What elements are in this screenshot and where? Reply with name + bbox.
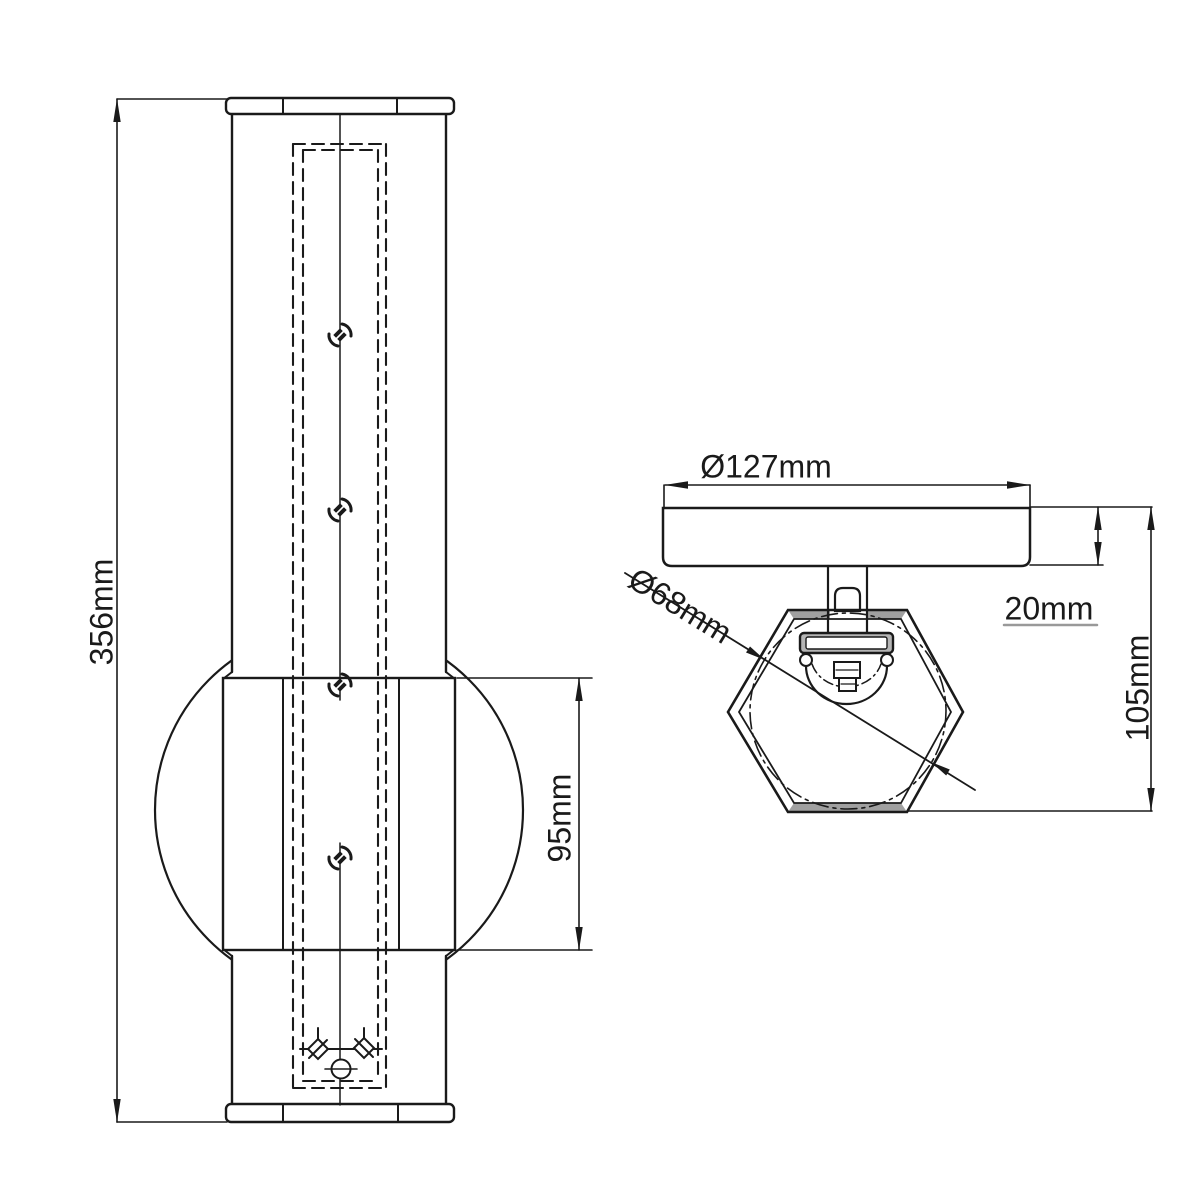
dimension-label-projection-height: 105mm: [1120, 635, 1157, 742]
top-cap: [226, 98, 454, 114]
technical-drawing-canvas: 356mm 95mm Ø127mm Ø68mm 20mm 105mm: [0, 0, 1200, 1200]
dimension-label-canopy-diameter: Ø127mm: [700, 449, 832, 486]
canopy-plate: [663, 508, 1030, 566]
dim-127: [664, 485, 1030, 507]
sphere-band: [223, 678, 455, 950]
stem-nut: [835, 588, 860, 611]
dimension-label-canopy-depth: 20mm: [1005, 591, 1094, 628]
bottom-cap: [226, 1104, 454, 1122]
dim-356: [117, 99, 227, 1122]
dimension-label-overall-height: 356mm: [84, 559, 121, 666]
front-view-linework: [117, 98, 592, 1122]
top-view-linework: [625, 485, 1152, 812]
dimension-label-glass-height: 95mm: [542, 774, 579, 863]
